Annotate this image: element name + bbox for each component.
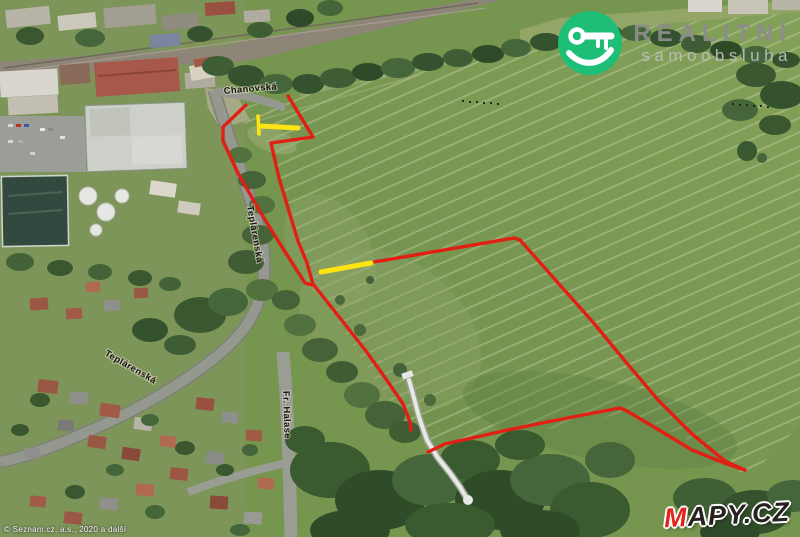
mapycz-logo-m: M: [663, 502, 688, 533]
realitni-name: REALITNÍ: [633, 21, 792, 46]
mapycz-logo-rest: APY.CZ: [687, 497, 791, 532]
access-segment-top: [260, 126, 298, 128]
street-label-fr-halase: Fr. Halase: [280, 391, 293, 439]
listing-aerial-image: Chanovská Teplárenská Teplárenská Fr. Ha…: [0, 0, 800, 537]
realitni-watermark: REALITNÍ samoobsluha: [557, 10, 792, 76]
realitni-key-badge: [557, 10, 623, 76]
realitni-wordmark: REALITNÍ samoobsluha: [633, 21, 792, 64]
aerial-map: Chanovská Teplárenská Teplárenská Fr. Ha…: [0, 0, 800, 537]
mapycz-logo: MAPY.CZ: [663, 497, 790, 535]
map-attribution: © Seznam.cz, a.s., 2020 a další: [4, 525, 126, 534]
access-tick-top: [258, 116, 259, 134]
realitni-subname: samoobsluha: [641, 47, 792, 65]
